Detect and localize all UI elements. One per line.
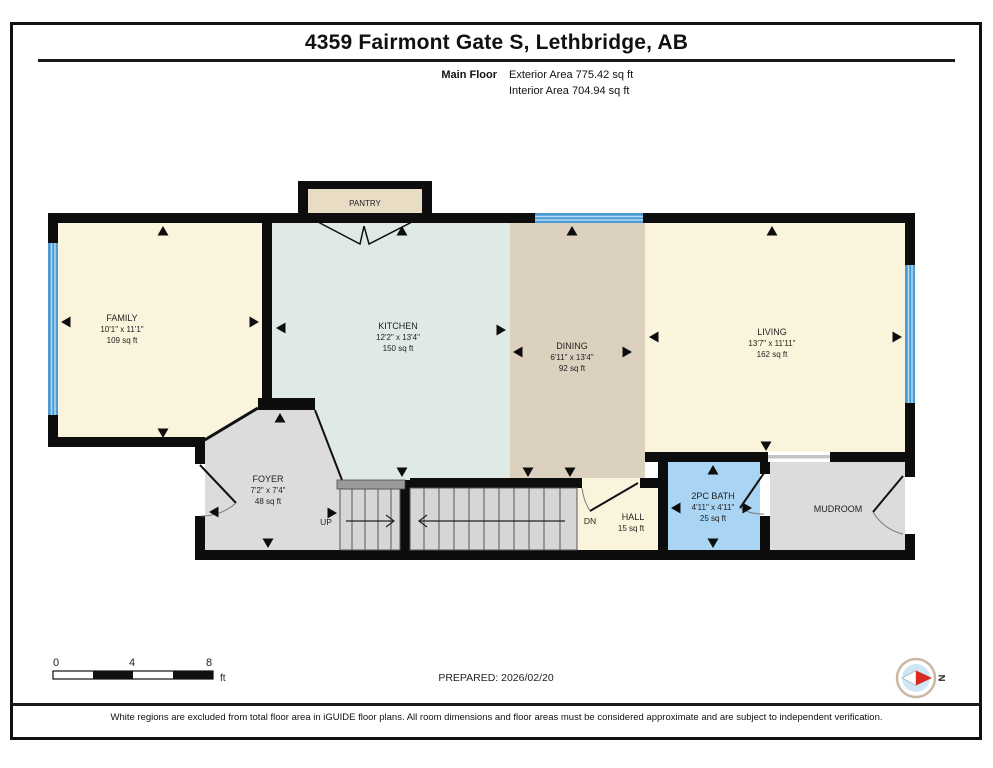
dining-label: DINING [556,341,588,351]
scale-unit: ft [220,673,226,684]
bath-area: 25 sq ft [700,514,727,523]
living-mudroom-opening [768,452,830,462]
scale-bar: 0 4 8 ft [53,657,226,684]
page-title: 4359 Fairmont Gate S, Lethbridge, AB [0,31,993,55]
floor-name-label: Main Floor [330,69,497,81]
scale-tick-8: 8 [206,657,212,669]
family-room-label: FAMILY [106,313,137,323]
prepared-date: PREPARED: 2026/02/20 [438,672,554,684]
mudroom-label: MUDROOM [814,504,863,514]
room-floors [58,189,905,550]
dining-area: 92 sq ft [559,364,586,373]
scale-tick-4: 4 [129,657,135,669]
hall-label: HALL [622,512,645,522]
dn-stairs-floor [410,488,577,550]
family-room-floor [58,223,262,441]
living-dims: 13'7" x 11'11" [748,339,795,348]
floorplan-drawing: FAMILY 10'1" x 11'1" 109 sq ft KITCHEN 1… [0,0,993,768]
interior-area-value: Interior Area 704.94 sq ft [509,85,629,97]
footer-disclaimer: White regions are excluded from total fl… [0,712,993,723]
floorplan-page: FAMILY 10'1" x 11'1" 109 sq ft KITCHEN 1… [0,0,993,768]
living-area: 162 sq ft [757,350,788,359]
title-divider [38,59,955,62]
north-label: N [935,675,946,682]
living-floor [645,223,905,452]
foyer-label: FOYER [252,474,284,484]
hall-area: 15 sq ft [618,524,645,533]
kitchen-label: KITCHEN [378,321,418,331]
kitchen-area: 150 sq ft [383,344,414,353]
compass-icon: N [897,659,946,697]
foyer-dims: 7'2" x 7'4" [251,486,286,495]
scale-tick-0: 0 [53,657,59,669]
dining-dims: 6'11" x 13'4" [550,353,593,362]
exterior-area-value: Exterior Area 775.42 sq ft [509,69,633,81]
family-window-icon [48,243,58,415]
foyer-area: 48 sq ft [255,497,282,506]
dn-label: DN [584,516,596,526]
family-room-area: 109 sq ft [107,336,138,345]
kitchen-dims: 12'2" x 13'4" [376,333,420,342]
bath-label: 2PC BATH [691,491,734,501]
living-window-icon [905,265,915,403]
footer-divider [13,703,979,706]
living-label: LIVING [757,327,787,337]
bath-dims: 4'11" x 4'11" [692,503,735,512]
up-label: UP [320,517,332,527]
pantry-label: PANTRY [349,199,381,208]
family-room-dims: 10'1" x 11'1" [100,325,143,334]
dining-window-icon [535,213,643,223]
